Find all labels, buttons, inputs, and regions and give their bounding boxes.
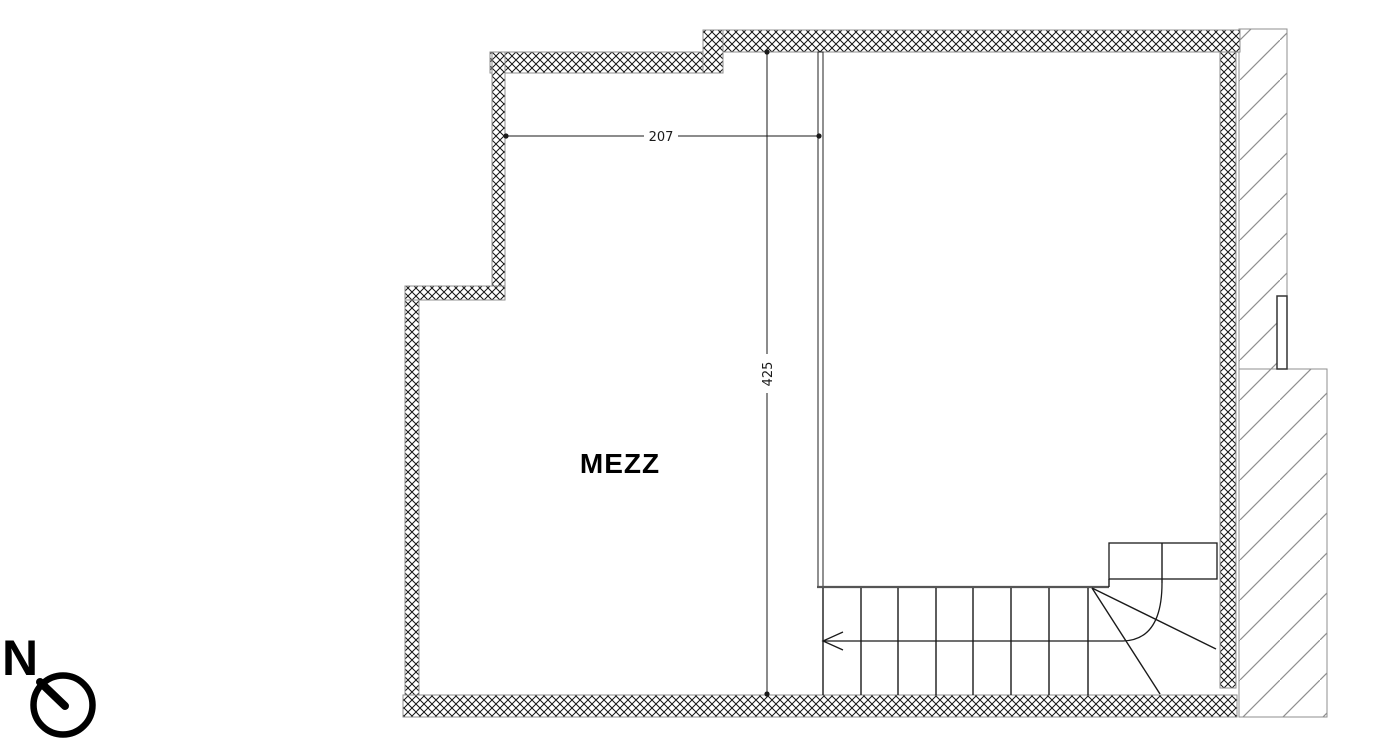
dim-depth-dot-top bbox=[764, 49, 769, 54]
wall-top-right bbox=[723, 30, 1240, 52]
floorplan-drawing: 207 425 MEZZ N bbox=[0, 0, 1386, 744]
wall-left-lower bbox=[405, 300, 419, 695]
wall-step-left bbox=[405, 286, 505, 300]
dim-depth-dot-bottom bbox=[764, 691, 769, 696]
drawing-background bbox=[0, 0, 1386, 744]
wall-left-upper bbox=[492, 52, 505, 300]
neighbor-door-notch bbox=[1277, 296, 1287, 369]
dim-width-dot-right bbox=[816, 133, 821, 138]
dim-depth-label: 425 bbox=[761, 362, 776, 387]
neighbor-wall-block bbox=[1239, 369, 1327, 717]
stair-landing bbox=[1109, 543, 1217, 579]
dim-width-label: 207 bbox=[649, 130, 674, 145]
room-label: MEZZ bbox=[580, 448, 660, 479]
dim-width-dot-left bbox=[503, 133, 508, 138]
north-label: N bbox=[2, 630, 38, 686]
wall-top-left bbox=[490, 52, 707, 73]
floorplan-canvas: 207 425 MEZZ N bbox=[0, 0, 1386, 744]
wall-step-up bbox=[703, 30, 723, 73]
wall-right bbox=[1220, 52, 1236, 688]
wall-bottom bbox=[403, 695, 1237, 717]
partition-wall bbox=[818, 52, 823, 587]
